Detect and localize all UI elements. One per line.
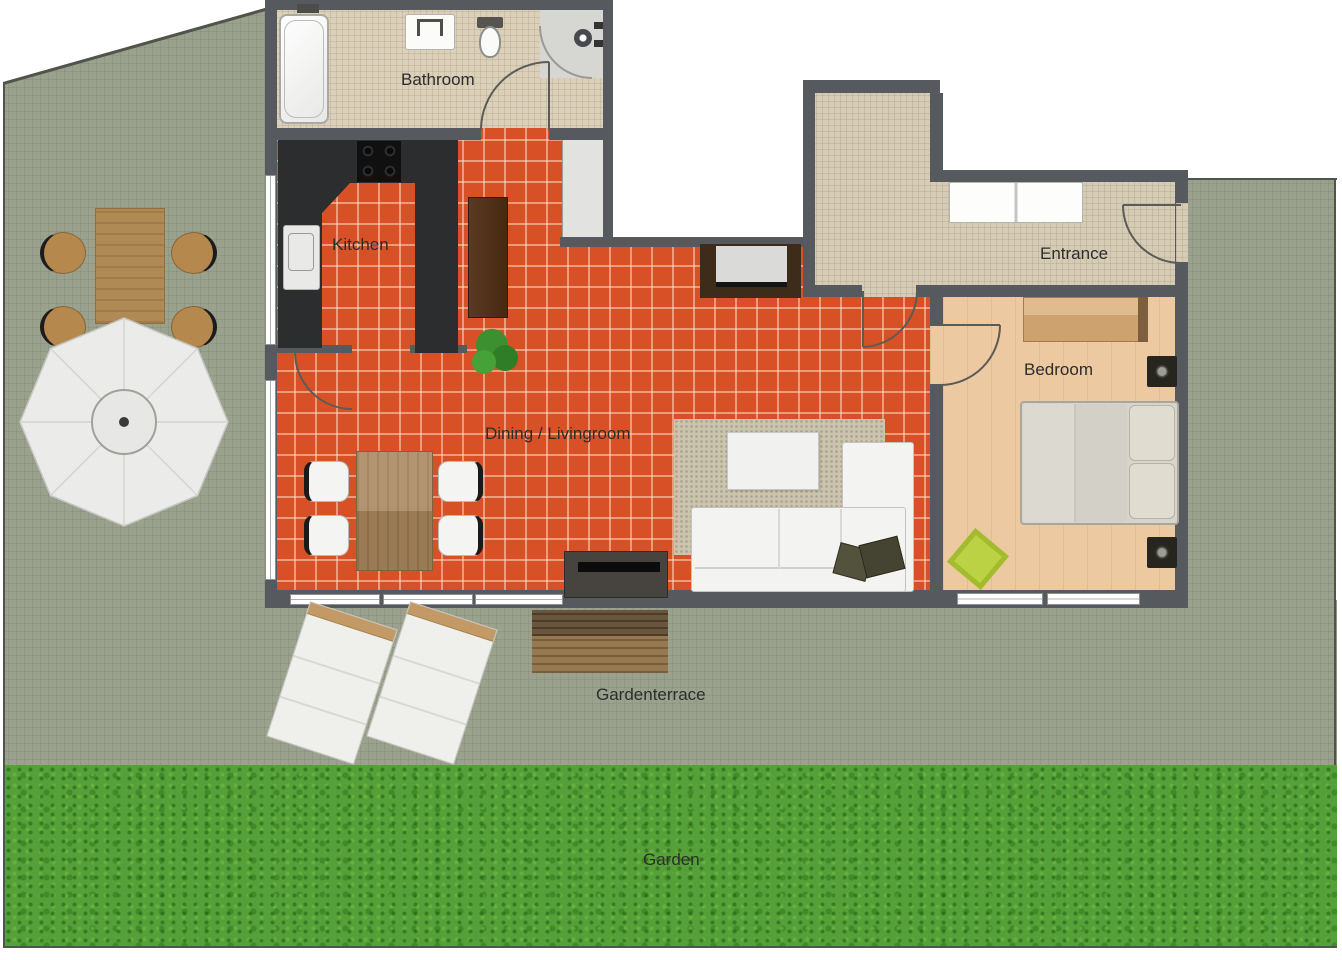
stove: [357, 141, 401, 182]
room-label-bedroom: Bedroom: [1024, 361, 1093, 380]
entrance-closet: [949, 182, 1083, 223]
room-label-bathroom: Bathroom: [401, 71, 475, 90]
living-west-window: [265, 380, 276, 580]
garden-bench-back: [532, 610, 668, 636]
living-south-window-3: [475, 594, 563, 605]
bedroom-window-2: [1047, 593, 1140, 605]
room-label-entrance: Entrance: [1040, 245, 1108, 264]
tall-cabinet: [468, 197, 508, 318]
utility-niche: [562, 138, 603, 237]
garden-edge-bottom: [3, 946, 1337, 948]
terrace-edge-left: [3, 82, 5, 765]
kitchen-door-opening: [352, 345, 410, 353]
wall-entrance-top: [803, 80, 940, 93]
shower-head: [574, 29, 592, 47]
front-door-opening: [1176, 203, 1188, 262]
kitchen-counter-right: [415, 140, 458, 353]
bed-mattress: [1023, 404, 1127, 522]
wall-entrance-bottom: [803, 285, 1188, 297]
bedroom-door-opening: [930, 326, 943, 384]
bathtub-faucet: [297, 4, 319, 13]
wall-bathroom-right: [603, 0, 613, 247]
entrance-floor-corridor: [815, 93, 930, 285]
patio-chair-2: [171, 232, 217, 274]
dining-chair-1: [304, 461, 349, 502]
bed-pillow-1: [1129, 405, 1175, 461]
terrace-edge-top-right: [1188, 178, 1337, 180]
dining-chair-2: [304, 515, 349, 556]
terrace-right: [1188, 180, 1335, 600]
dining-chair-3: [438, 461, 483, 502]
garden-edge-left: [3, 765, 5, 948]
bathroom-door-opening: [481, 128, 549, 140]
toilet-bowl: [479, 26, 501, 58]
tv-lowboard: [564, 551, 668, 598]
terrace-bottom: [3, 600, 1337, 765]
room-label-dining-livingroom: Dining / Livingroom: [485, 425, 631, 444]
patio-chair-3: [40, 306, 86, 348]
living-south-window-1: [290, 594, 380, 605]
bathroom-sink-faucet: [417, 19, 443, 36]
dresser: [1023, 297, 1148, 342]
wall-entrance-west: [803, 80, 815, 297]
sofa-seam-1: [778, 509, 780, 569]
wall-entrance-mid: [930, 93, 943, 182]
area-label-garden: Garden: [643, 851, 700, 870]
bathtub-inner: [284, 20, 324, 118]
speaker-top: [1147, 356, 1177, 387]
dining-table: [356, 451, 433, 571]
patio-table: [95, 208, 165, 324]
wall-bathroom-bottom: [265, 128, 613, 140]
room-label-kitchen: Kitchen: [332, 236, 389, 255]
kitchen-window: [265, 175, 276, 345]
bed-pillow-2: [1129, 463, 1175, 519]
bedroom-window-1: [957, 593, 1043, 605]
floor-plan: Bathroom Kitchen Dining / Livingroom Ent…: [0, 0, 1342, 960]
coffee-table: [727, 432, 819, 490]
wall-entrance-top-right: [930, 170, 1188, 182]
shower-valve: [594, 22, 603, 29]
entrance-living-door-opening: [862, 285, 916, 297]
living-south-window-2: [383, 594, 473, 605]
dining-chair-4: [438, 515, 483, 556]
patio-chair-1: [40, 232, 86, 274]
garden-bench-seat: [532, 636, 668, 673]
dresser-side: [1138, 297, 1148, 342]
living-floor-mid: [803, 297, 930, 353]
speaker-bottom: [1147, 537, 1177, 568]
kitchen-sink-basin: [288, 233, 314, 271]
tv-lowboard-screen: [578, 562, 660, 572]
area-label-gardenterrace: Gardenterrace: [596, 686, 706, 705]
patio-chair-4: [171, 306, 217, 348]
wall-tv-screen: [716, 246, 787, 287]
shower-valve-2: [594, 40, 603, 47]
